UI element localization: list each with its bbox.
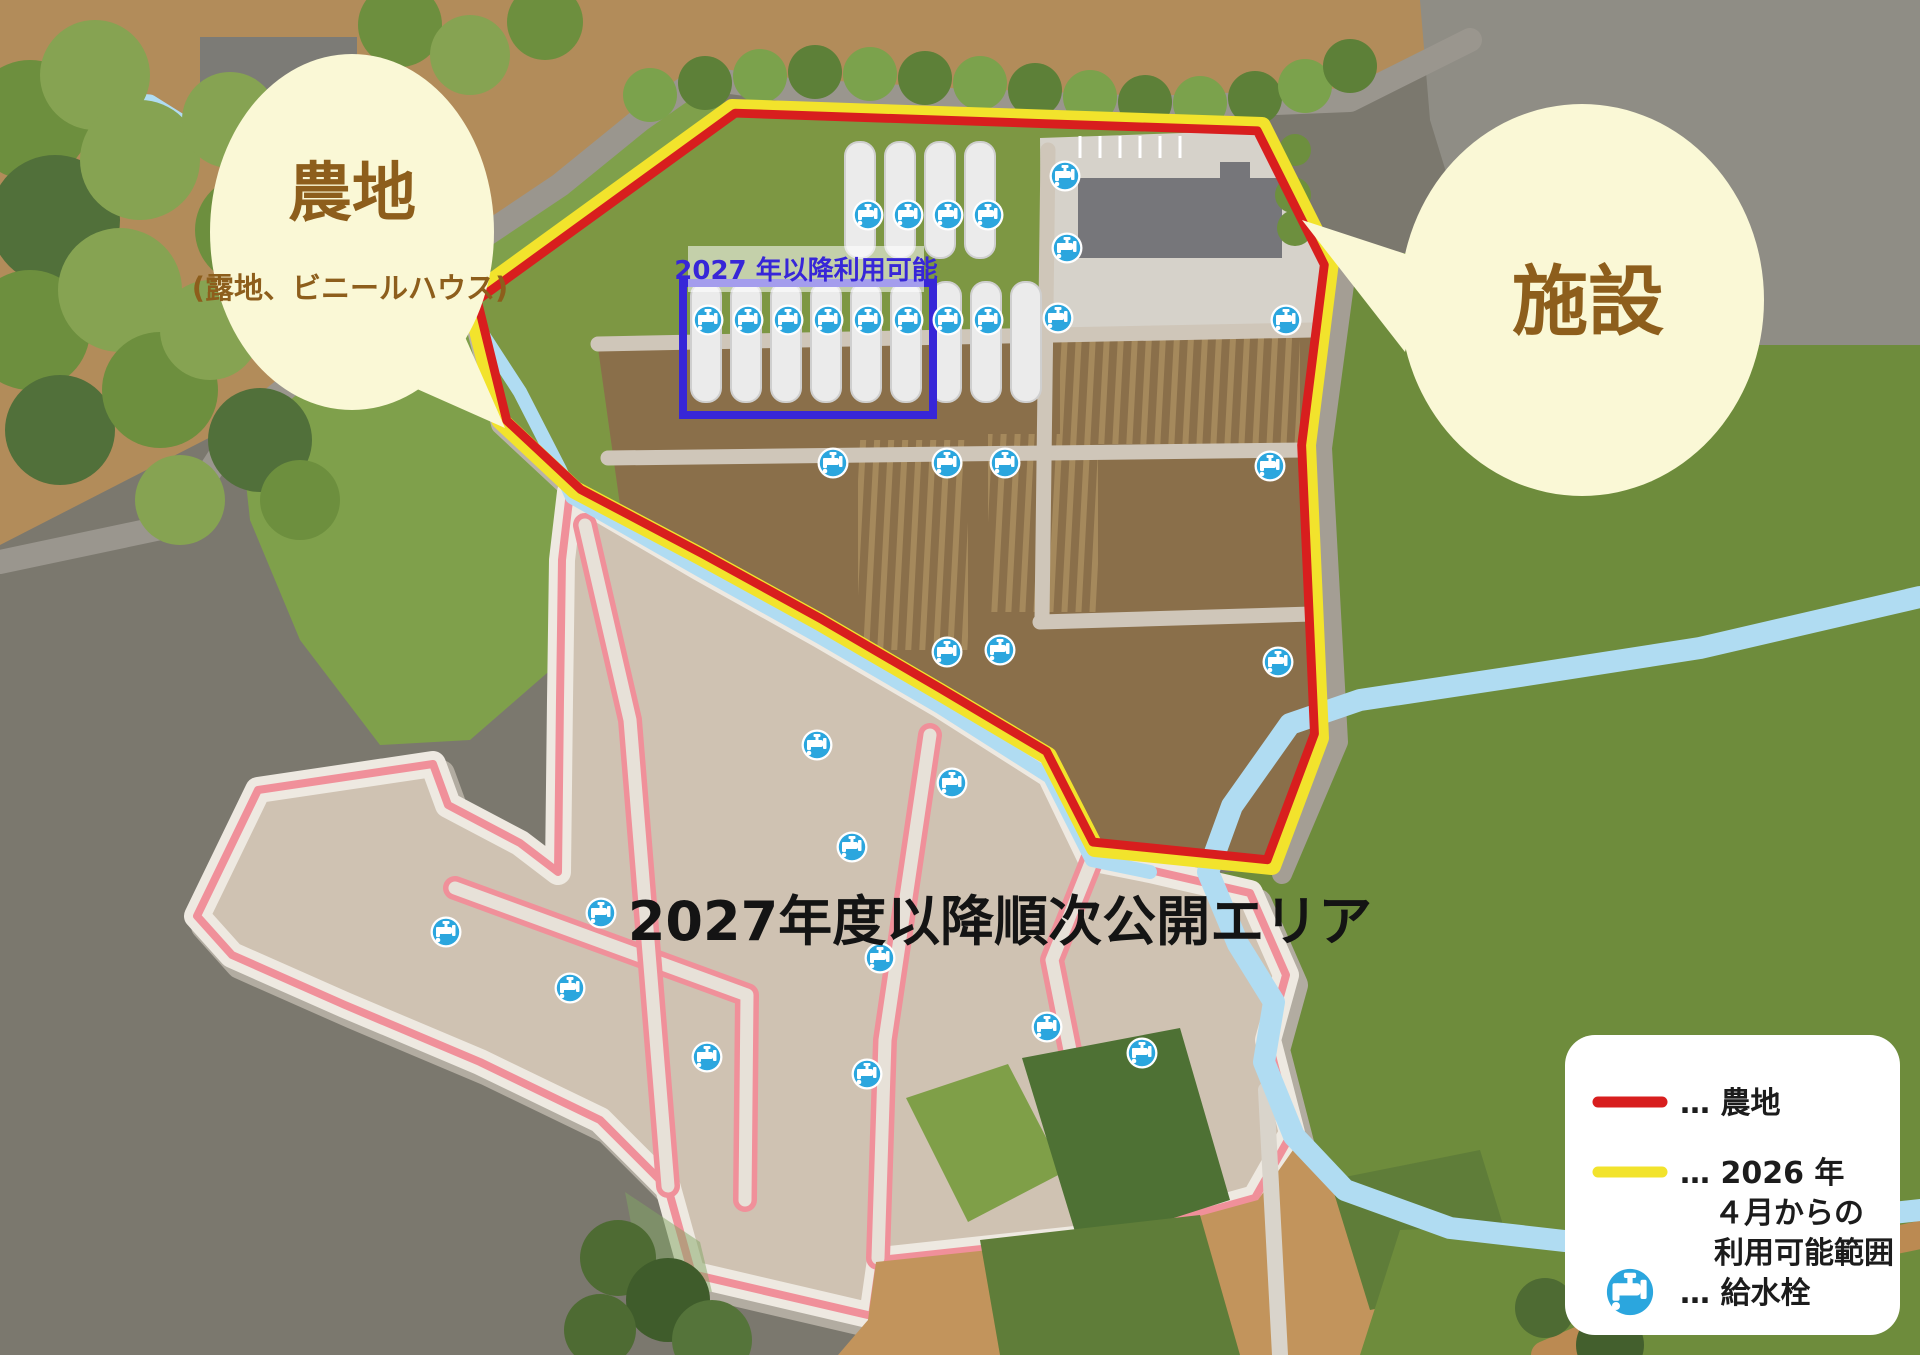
facility-building <box>1220 162 1250 180</box>
facility-bubble-title: 施設 <box>1512 257 1664 346</box>
farmland-bubble-body <box>210 54 494 410</box>
map-stage: 2027 年以降利用可能 2027年度以降順次公開エリア 農地 (露地、ビニール… <box>0 0 1920 1355</box>
legend-tap-label: … 給水栓 <box>1680 1276 1810 1311</box>
legend-available-label-2: ４月からの <box>1714 1196 1864 1231</box>
water-tap-icon <box>852 1059 883 1090</box>
facility-building <box>1078 178 1282 258</box>
water-tap-icon <box>555 973 586 1004</box>
tilled-rows <box>1060 336 1300 444</box>
water-tap-icon <box>837 832 868 863</box>
future-area-label: 2027年度以降順次公開エリア <box>628 890 1372 953</box>
water-tap-icon <box>1052 233 1083 264</box>
water-tap-icon <box>813 305 844 336</box>
water-tap-icon <box>802 730 833 761</box>
water-tap-icon <box>932 637 963 668</box>
water-tap-icon <box>933 305 964 336</box>
water-tap-icon <box>937 768 968 799</box>
water-tap-icon <box>773 305 804 336</box>
water-tap-icon <box>973 305 1004 336</box>
water-tap-icon <box>818 448 849 479</box>
water-tap-icon <box>693 305 724 336</box>
water-tap-icon <box>733 305 764 336</box>
legend-available-label-3: 利用可能範囲 <box>1714 1236 1894 1271</box>
map-canvas: 2027 年以降利用可能 2027年度以降順次公開エリア 農地 (露地、ビニール… <box>0 0 1920 1355</box>
greenhouse-zone-label: 2027 年以降利用可能 <box>674 255 937 286</box>
water-tap-icon <box>1271 305 1302 336</box>
water-tap-icon <box>853 200 884 231</box>
water-tap-icon <box>1263 647 1294 678</box>
farmland-bubble-subtitle: (露地、ビニールハウス) <box>192 271 509 305</box>
water-tap-icon <box>985 635 1016 666</box>
water-tap-icon <box>893 305 924 336</box>
water-tap-icon <box>1050 161 1081 192</box>
legend-farmland-label: … 農地 <box>1680 1086 1780 1121</box>
water-tap-icon <box>431 917 462 948</box>
field-patch <box>980 1215 1240 1355</box>
water-tap-icon <box>1043 303 1074 334</box>
legend: … 農地 … 2026 年 ４月からの 利用可能範囲 … 給水栓 <box>1565 1035 1900 1335</box>
water-tap-icon <box>1032 1012 1063 1043</box>
farmland-bubble-title: 農地 <box>288 157 416 231</box>
water-tap-icon <box>990 448 1021 479</box>
water-tap-icon <box>973 200 1004 231</box>
water-tap-icon <box>933 200 964 231</box>
water-tap-icon <box>1255 451 1286 482</box>
legend-water-tap-icon <box>1603 1265 1657 1319</box>
water-tap-icon <box>586 898 617 929</box>
water-tap-icon <box>692 1042 723 1073</box>
water-tap-icon <box>932 448 963 479</box>
legend-available-label: … 2026 年 <box>1680 1156 1844 1191</box>
water-tap-icon <box>893 200 924 231</box>
water-tap-icon <box>1127 1038 1158 1069</box>
water-tap-icon <box>853 305 884 336</box>
